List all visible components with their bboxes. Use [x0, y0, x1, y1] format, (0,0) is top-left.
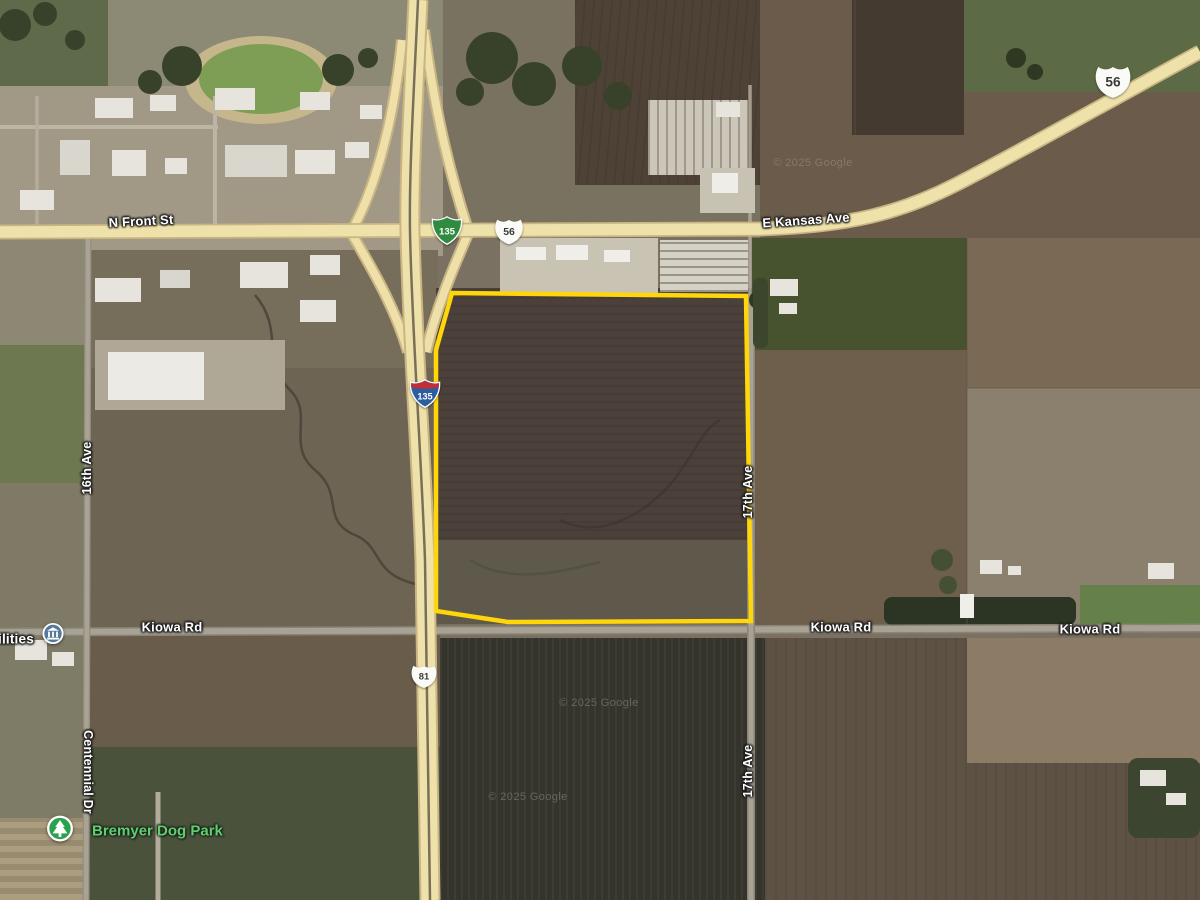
satellite-map[interactable]: N Front St E Kansas Ave Kiowa Rd Kiowa R…	[0, 0, 1200, 900]
shield-us-81: 81	[409, 662, 439, 694]
road-label-kiowa-rd-east: Kiowa Rd	[811, 620, 872, 635]
field-boundaries	[855, 0, 1200, 632]
svg-text:56: 56	[503, 227, 515, 238]
google-watermark: © 2025 Google	[559, 697, 638, 709]
us-route-shield-icon: 81	[409, 662, 439, 689]
parcel-boundary	[436, 293, 751, 622]
poi-label-dog-park[interactable]: Bremyer Dog Park	[92, 823, 223, 840]
svg-text:135: 135	[439, 226, 456, 237]
svg-text:81: 81	[419, 672, 429, 682]
svg-text:56: 56	[1105, 74, 1121, 89]
highways	[0, 0, 1200, 900]
us-route-shield-icon: 56	[1092, 62, 1134, 100]
road-label-kiowa-rd-west: Kiowa Rd	[142, 620, 203, 635]
road-label-17th-ave-north: 17th Ave	[741, 466, 755, 519]
road-label-16th-ave: 16th Ave	[80, 442, 94, 495]
road-label-17th-ave-south: 17th Ave	[741, 745, 755, 798]
interstate-shield-icon: 135	[408, 379, 442, 409]
road-label-kiowa-rd-far-east: Kiowa Rd	[1060, 622, 1121, 637]
park-tree-icon[interactable]	[47, 815, 74, 847]
road-label-centennial-dr: Centennial Dr	[81, 730, 95, 814]
trees	[0, 2, 1043, 594]
google-watermark: © 2025 Google	[773, 157, 852, 169]
us-route-shield-icon: 56	[492, 216, 526, 246]
shield-business-loop-135: 135	[430, 216, 464, 251]
map-canvas	[0, 0, 1200, 900]
svg-text:135: 135	[417, 391, 432, 401]
creeks	[255, 295, 720, 585]
shield-us-56-northeast: 56	[1092, 62, 1134, 105]
poi-label-utilities-partial[interactable]: ilities	[0, 632, 34, 647]
shield-interstate-135: 135	[408, 379, 442, 414]
google-watermark: © 2025 Google	[488, 791, 567, 803]
shield-us-56-west: 56	[492, 216, 526, 251]
civic-building-icon[interactable]	[42, 623, 64, 650]
business-loop-shield-icon: 135	[430, 216, 464, 246]
minor-roads	[0, 85, 1200, 900]
